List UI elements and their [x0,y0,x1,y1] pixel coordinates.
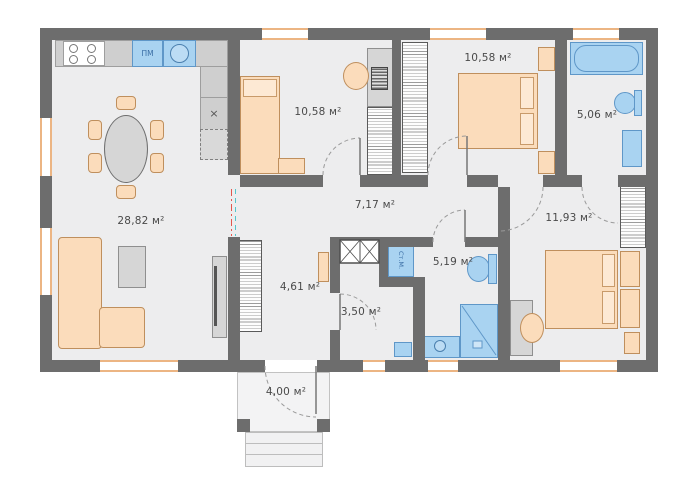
wall-segment [330,330,340,360]
pillow [243,79,277,97]
wall-segment [228,40,240,175]
wall-segment [498,187,510,360]
toilet-tank [634,90,642,116]
wall-segment [392,40,401,175]
bathroom-vanity [622,130,642,167]
fridge [200,129,228,160]
kitchen-counter-column [200,66,228,98]
dishwasher: ПМ [132,40,163,67]
hall-shelf [318,252,329,282]
wall-segment [555,40,567,175]
room-label-porch: 4,00 м² [266,386,306,398]
entry-step [245,454,323,467]
room-label-hallway: 7,17 м² [355,199,395,211]
pillow [520,77,534,109]
floor-plan: ПМ × Ст.М. [0,0,698,502]
wall-segment [379,240,388,280]
wc-sink [394,342,412,357]
room-label-bathroom-top: 5,06 м² [577,109,617,121]
toilet-tank [488,254,497,284]
room-label-living-kitchen: 28,82 м² [117,215,164,227]
porch-post [317,419,330,432]
dining-chair [88,120,102,140]
stove [63,41,105,66]
computer-icon [371,67,388,90]
window [430,28,486,40]
sofa [58,237,102,349]
bedroom-wardrobe [402,42,428,173]
dining-table [104,115,148,183]
nightstand [538,47,555,71]
dining-chair [116,96,136,110]
dresser [620,289,640,328]
wall-segment [228,237,240,360]
wall-segment [543,175,582,187]
dining-chair [88,153,102,173]
dining-chair [116,185,136,199]
wall-segment [413,287,425,360]
dishwasher-label: ПМ [133,41,162,66]
room-label-bathroom-shower: 5,19 м² [433,256,473,268]
window [428,360,458,372]
toilet-bowl [614,92,636,114]
washing-machine: Ст.М. [388,243,414,277]
sofa-chaise [99,307,145,348]
hob-unit: × [200,97,228,130]
wall-segment [467,175,498,187]
nightstand [624,332,640,354]
wall-segment [360,175,428,187]
wall-segment [240,175,323,187]
wall-segment [618,175,646,187]
room-label-entry-hall: 4,61 м² [280,281,320,293]
pillow [602,291,615,324]
room-label-bedroom-master: 11,93 м² [545,212,592,224]
dresser [620,251,640,287]
room-label-wc: 3,50 м² [341,306,381,318]
pillow [602,254,615,287]
room-label-bedroom-right: 10,58 м² [464,52,511,64]
tv-icon [214,266,217,326]
room-label-bedroom-middle: 10,58 м² [294,106,341,118]
wall-segment [465,237,498,247]
washing-machine-label: Ст.М. [389,244,413,276]
window [100,360,178,372]
bedroom-wardrobe [367,107,393,175]
window [40,228,52,295]
vanity-sink-icon [434,340,446,352]
pillow [520,113,534,145]
dining-chair [150,153,164,173]
bathtub-inner [574,45,639,72]
bedside-bench [278,158,305,174]
window [560,360,617,372]
bedroom-wardrobe [620,180,646,248]
desk-chair [520,313,544,343]
wall-segment [330,237,340,293]
front-door-opening [265,360,317,372]
sink-bowl-icon [170,44,189,63]
nightstand [538,151,555,174]
dining-chair [150,120,164,140]
coffee-table [118,246,146,288]
window [40,118,52,176]
desk-chair [343,62,369,90]
window [573,28,619,40]
window [262,28,308,40]
wall-segment [379,277,425,287]
window [363,360,385,372]
shower [460,304,498,358]
porch-post [237,419,250,432]
